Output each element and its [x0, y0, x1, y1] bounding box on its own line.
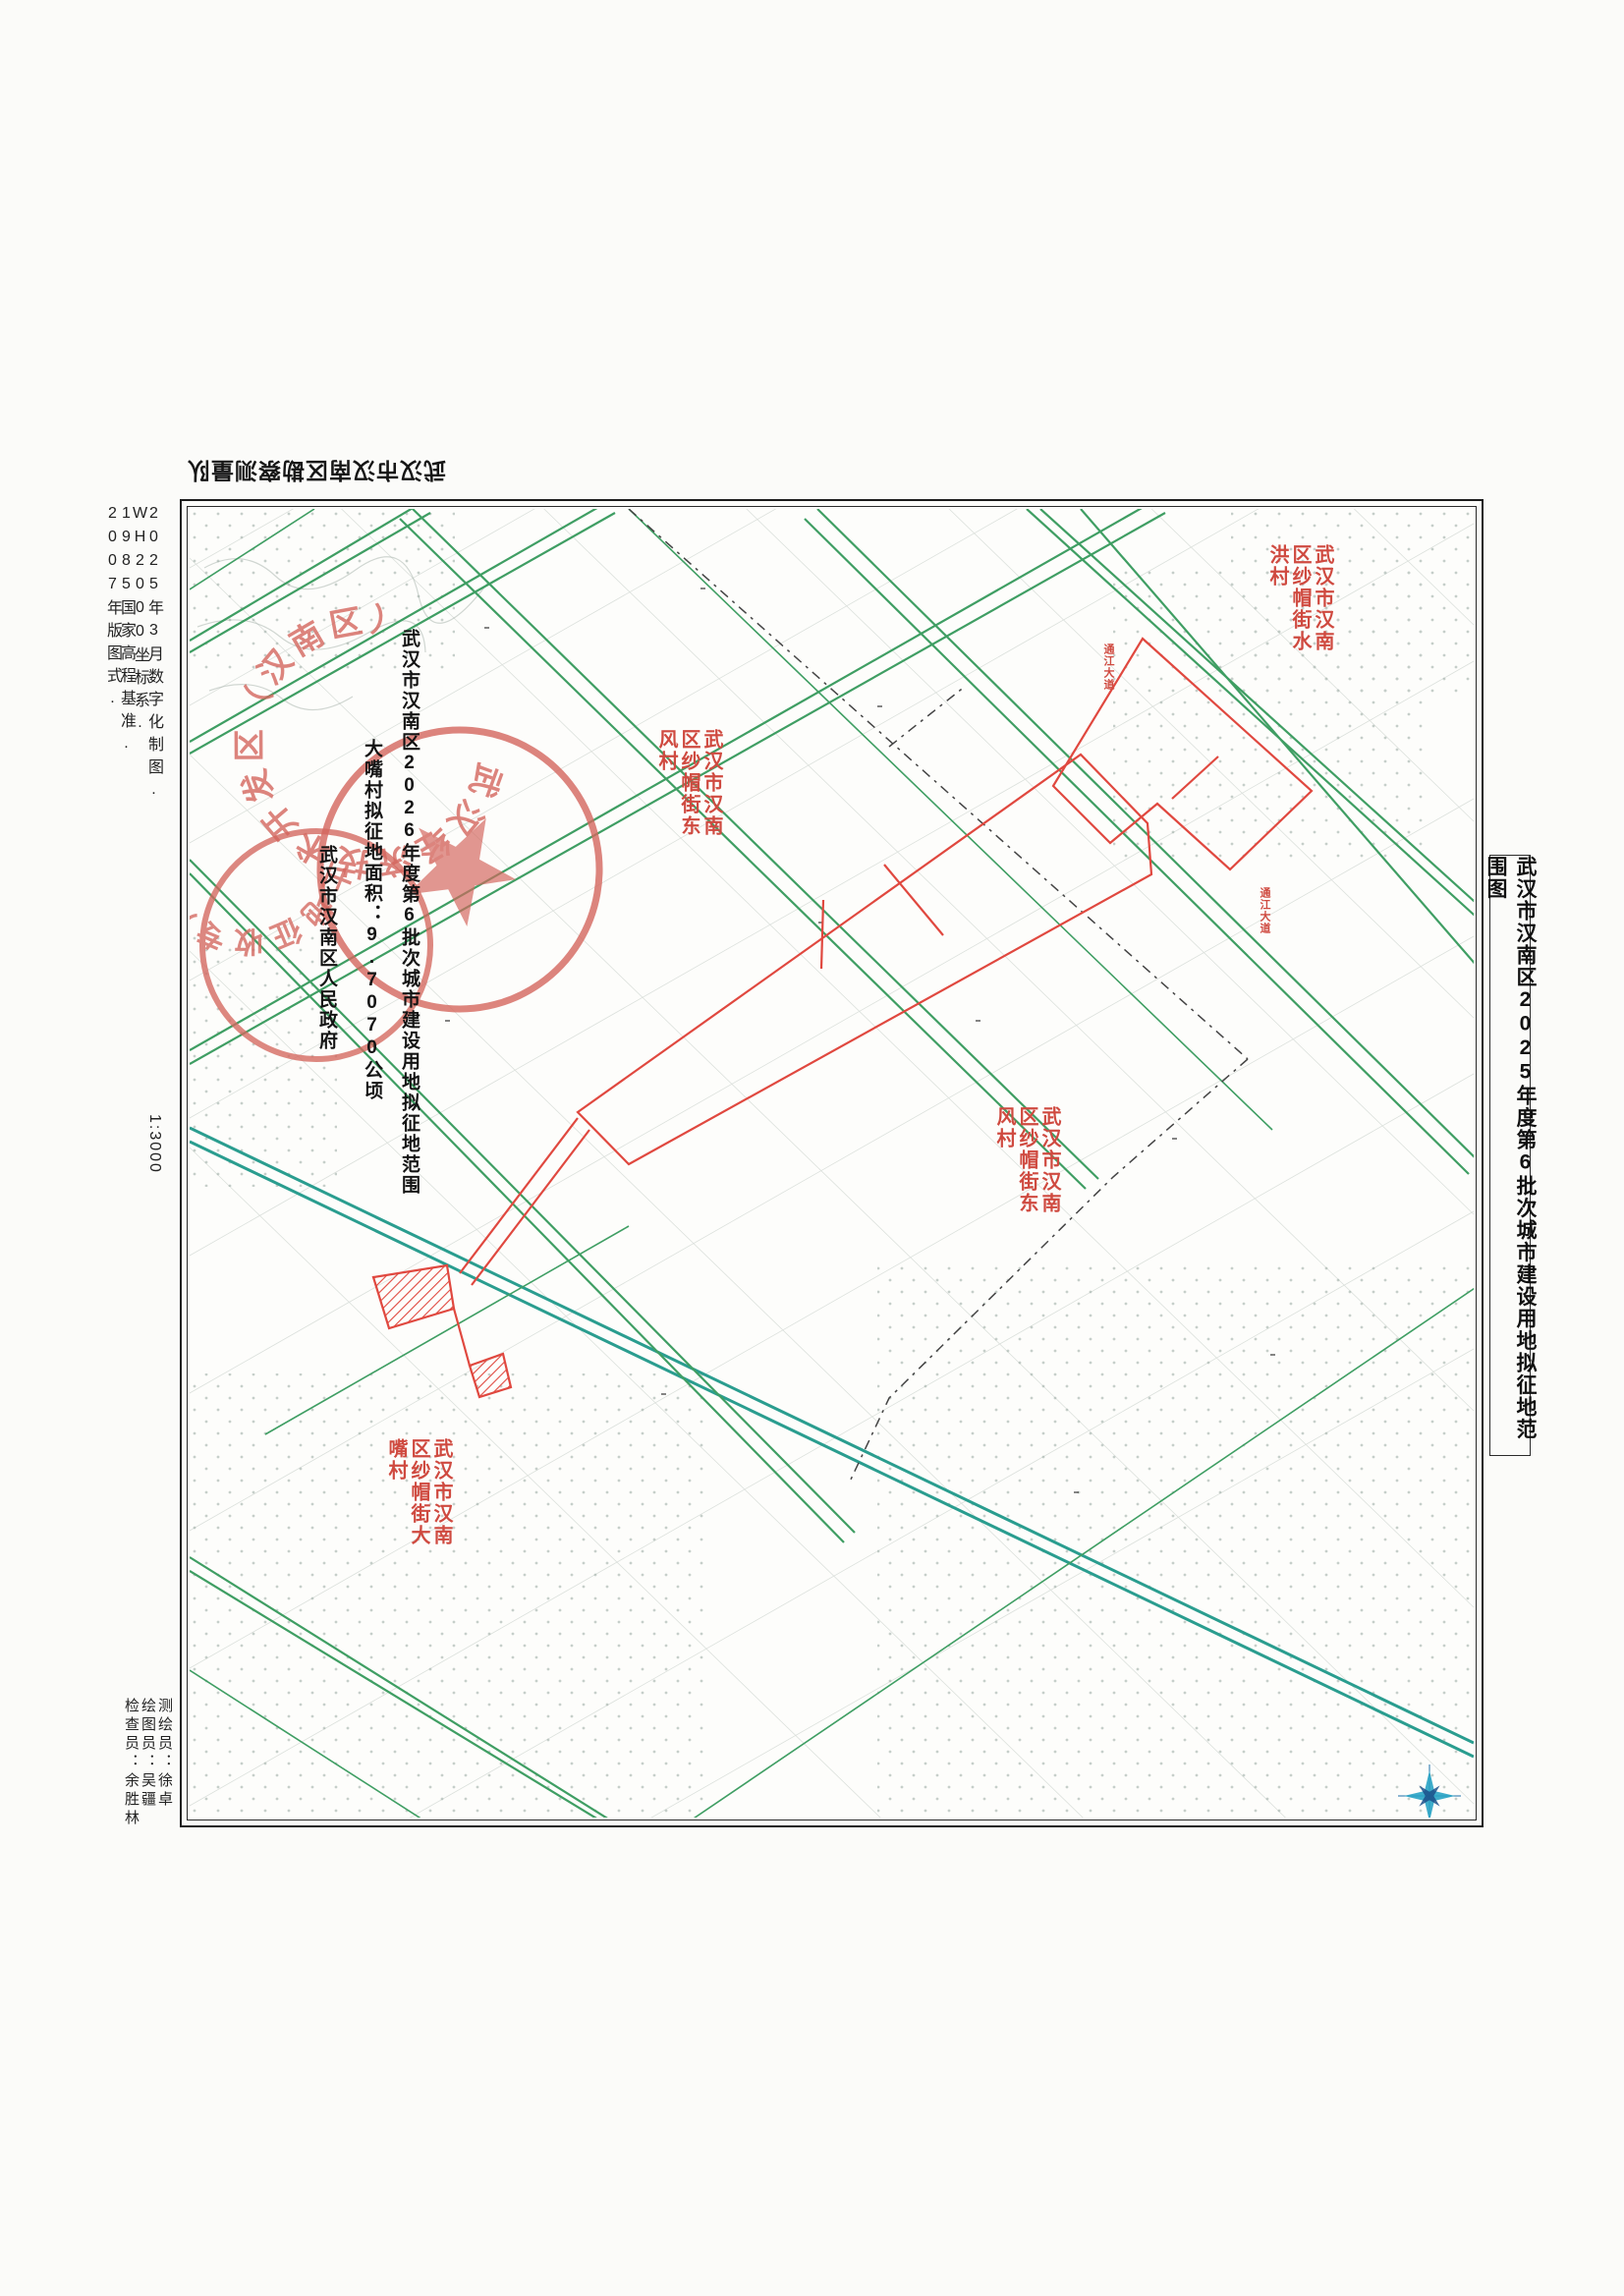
- map-canvas: 土地征收专用章 武汉经济技术开发区（汉南区）: [190, 509, 1474, 1818]
- road-label-tongjiang-1: 通江大道: [1100, 644, 1116, 700]
- sheet-title: 武汉市汉南区2025年度第6批次城市建设用地拟征地范围图: [1481, 856, 1540, 1455]
- annotation-column-batch: 武汉市汉南区2026年度第6批次城市建设用地拟征地范围: [399, 629, 422, 1196]
- scale-label: 1:3000: [145, 1114, 163, 1183]
- credit-drafter: 绘图员：吴疆: [140, 1698, 158, 1810]
- village-label-shuihong: 武汉市汉南区纱帽街水洪村: [1265, 544, 1333, 660]
- margin-note-4: 2007年版图式.: [106, 505, 124, 713]
- map-sheet-page: 土地征收专用章 武汉经济技术开发区（汉南区） 武汉市汉南区2025年度第6批次城…: [0, 0, 1624, 2296]
- annotation-column-government: 武汉市汉南区人民政府: [316, 845, 340, 1051]
- village-label-dazui: 武汉市汉南区纱帽街大嘴村: [384, 1438, 452, 1554]
- village-label-dongfeng-east: 武汉市汉南区纱帽街东风村: [992, 1106, 1060, 1222]
- agency-name-flipped: 武汉市汉南区勘察测量队: [183, 452, 446, 489]
- credit-checker: 检查员：余胜林: [124, 1698, 141, 1828]
- credit-surveyor: 测绘员：徐卓: [157, 1698, 175, 1810]
- village-label-dongfeng-west: 武汉市汉南区纱帽街东风村: [654, 729, 722, 845]
- road-label-tongjiang-2: 通江大道: [1257, 887, 1272, 944]
- annotation-column-area: 大嘴村拟征地面积：9.7070公顷: [362, 739, 385, 1101]
- sheet-title-box: 武汉市汉南区2025年度第6批次城市建设用地拟征地范围图: [1489, 855, 1531, 1456]
